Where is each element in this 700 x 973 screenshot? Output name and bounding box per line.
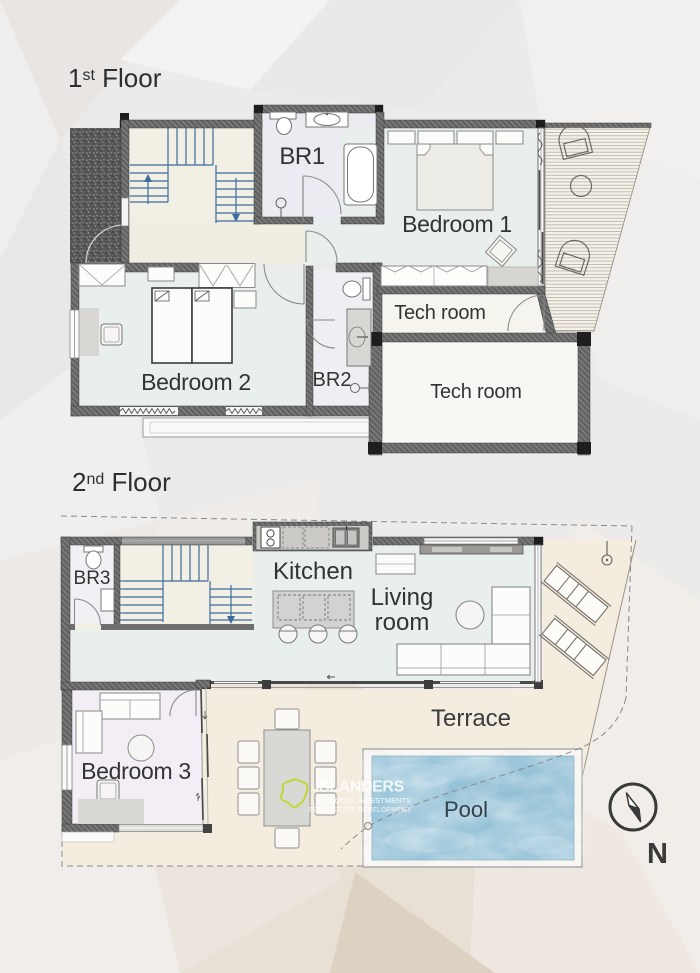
svg-text:Bedroom 1: Bedroom 1 [402,211,512,237]
svg-text:ISLANDERS: ISLANDERS [315,779,405,796]
svg-text:BR2: BR2 [313,369,352,391]
svg-text:Terrace: Terrace [431,705,511,732]
svg-text:Pool: Pool [444,797,488,822]
svg-text:Living: Living [371,584,434,611]
svg-text:Tech room: Tech room [430,381,522,403]
svg-text:N: N [647,838,668,870]
svg-text:room: room [375,609,430,636]
svg-text:1st Floor: 1st Floor [68,63,162,93]
svg-text:Kitchen: Kitchen [273,558,353,585]
svg-text:BR3: BR3 [74,568,111,589]
svg-text:LOCAL INVESTMENTS: LOCAL INVESTMENTS [330,796,411,805]
svg-text:Tech room: Tech room [394,302,486,324]
svg-text:Bedroom 3: Bedroom 3 [81,758,191,784]
svg-text:BR1: BR1 [279,143,324,170]
svg-text:Bedroom 2: Bedroom 2 [141,369,251,395]
svg-text:REAL ESTATE DEVELOPMENT: REAL ESTATE DEVELOPMENT [308,807,411,814]
